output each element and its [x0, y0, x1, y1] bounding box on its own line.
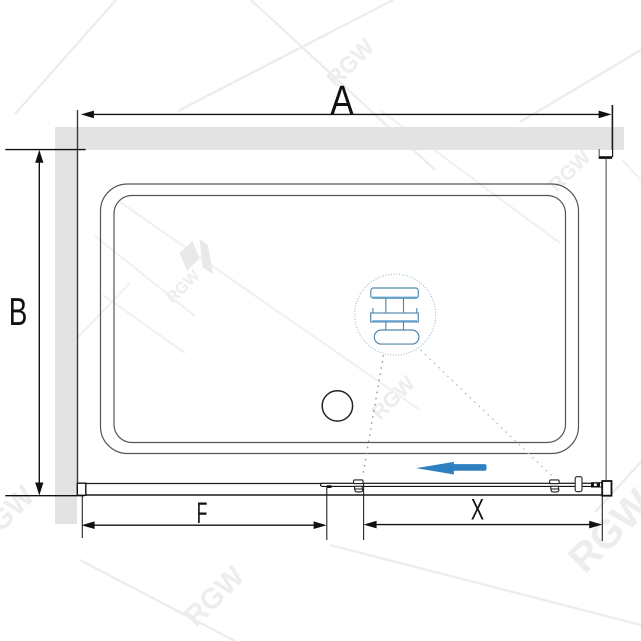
svg-text:B: B: [9, 291, 28, 334]
svg-text:X: X: [471, 494, 484, 527]
svg-text:A: A: [330, 77, 354, 124]
svg-text:F: F: [197, 497, 208, 530]
